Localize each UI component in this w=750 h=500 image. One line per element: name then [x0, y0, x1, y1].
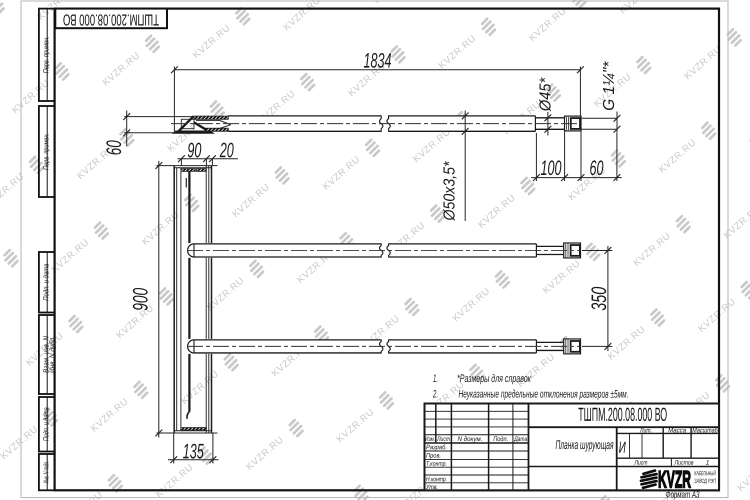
svg-text:Лит.: Лит.: [639, 427, 652, 434]
svg-text:Перв. примен.: Перв. примен.: [41, 133, 50, 170]
svg-text:ЗАВОД РЭП: ЗАВОД РЭП: [694, 478, 716, 485]
svg-text:Т.контр.: Т.контр.: [426, 461, 447, 468]
svg-text:Масса: Масса: [668, 427, 686, 434]
svg-text:135: 135: [183, 440, 204, 463]
svg-text:Инв. N подл.: Инв. N подл.: [41, 461, 50, 484]
svg-text:Перв. примен.: Перв. примен.: [41, 36, 50, 73]
svg-text:Ø45*: Ø45*: [538, 77, 555, 112]
svg-text:100: 100: [540, 157, 561, 180]
svg-text:Инв. N дубл.: Инв. N дубл.: [47, 336, 56, 373]
svg-text:1.: 1.: [433, 373, 438, 385]
svg-text:Изм.: Изм.: [425, 436, 435, 443]
svg-text:Утв.: Утв.: [425, 484, 438, 491]
svg-text:Ø50х3,5*: Ø50х3,5*: [442, 161, 459, 222]
svg-text:G 1¼"*: G 1¼"*: [601, 61, 618, 111]
svg-text:900: 900: [130, 288, 153, 311]
svg-text:350: 350: [588, 287, 611, 311]
svg-text:КАБЕЛЬНЫЙ: КАБЕЛЬНЫЙ: [694, 469, 716, 477]
svg-text:ТШПМ.200.08.000 ВО: ТШПМ.200.08.000 ВО: [63, 10, 159, 27]
svg-text:1834: 1834: [363, 50, 391, 73]
svg-text:90: 90: [187, 139, 201, 162]
svg-text:Подп. и дата: Подп. и дата: [41, 264, 50, 301]
svg-text:Н.контр.: Н.контр.: [426, 476, 447, 483]
svg-text:*Размеры для справок: *Размеры для справок: [457, 373, 532, 385]
svg-text:Лист: Лист: [436, 436, 450, 443]
svg-text:1: 1: [706, 460, 710, 467]
svg-text:Масштаб: Масштаб: [692, 427, 718, 434]
svg-text:60: 60: [589, 157, 603, 180]
svg-text:Дата: Дата: [513, 436, 527, 443]
svg-text:60: 60: [103, 140, 126, 155]
svg-text:Лист: Лист: [634, 460, 648, 467]
svg-text:ТШПМ.200.08.000 ВО: ТШПМ.200.08.000 ВО: [578, 405, 667, 426]
svg-text:Формат А3: Формат А3: [665, 490, 699, 500]
svg-text:И: И: [619, 440, 626, 457]
svg-text:20: 20: [219, 139, 234, 162]
svg-text:Подп.: Подп.: [493, 436, 508, 443]
svg-text:Неуказанные предельные отклоне: Неуказанные предельные отклонения размер…: [458, 389, 628, 401]
svg-text:Планка шурующая: Планка шурующая: [555, 438, 613, 452]
svg-text:Пров.: Пров.: [426, 453, 441, 460]
svg-text:2.: 2.: [432, 388, 438, 400]
svg-text:N докум.: N докум.: [457, 436, 482, 443]
svg-text:Подп. и дата: Подп. и дата: [41, 407, 50, 441]
svg-text:Разраб.: Разраб.: [426, 444, 447, 451]
